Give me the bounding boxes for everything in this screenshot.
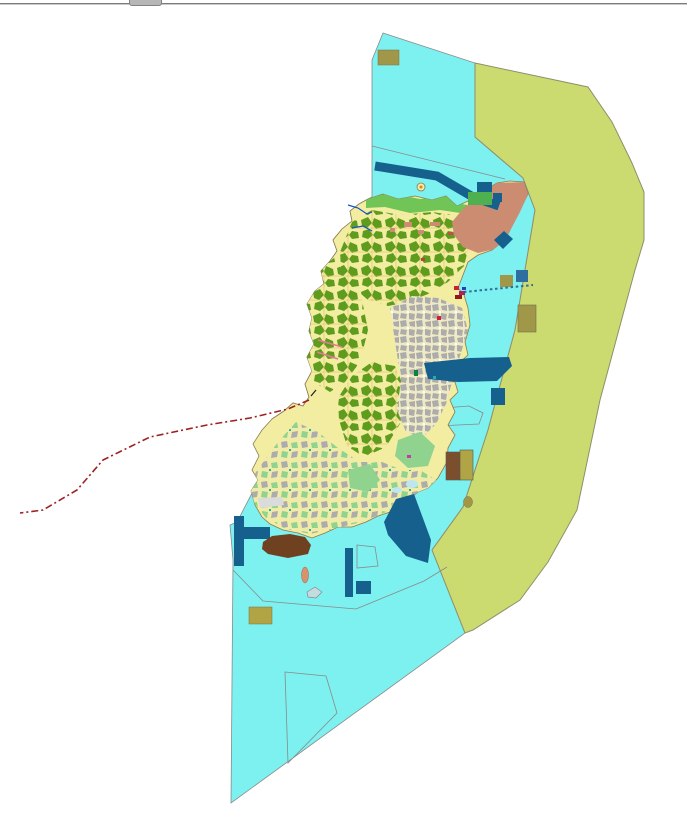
pier-south[interactable] — [345, 548, 353, 597]
speck-red-3 — [448, 232, 453, 235]
slate-site-e[interactable] — [516, 270, 528, 282]
salmon-speck-3 — [430, 222, 440, 226]
harbor-sq-east[interactable] — [491, 388, 505, 405]
khaki-site-top[interactable] — [378, 50, 399, 65]
zoning-map[interactable] — [0, 0, 687, 821]
khaki-site-se[interactable] — [460, 450, 473, 480]
speck-red-2 — [421, 258, 425, 261]
khaki-site-e1[interactable] — [500, 275, 513, 287]
khaki-site-e2[interactable] — [518, 305, 536, 332]
khaki-islet-se — [464, 497, 473, 508]
salmon-speck-1 — [404, 222, 412, 227]
harbor-sq-south[interactable] — [356, 581, 371, 594]
salmon-speck-4 — [390, 228, 395, 232]
pier-west-arm[interactable] — [244, 527, 270, 539]
brown-site-se[interactable] — [446, 452, 460, 480]
ferry-mark-1 — [454, 286, 459, 290]
ferry-mark-4 — [462, 287, 466, 290]
salmon-speck-2 — [418, 230, 424, 234]
speck-teal-1 — [433, 376, 436, 379]
speck-green-1 — [414, 370, 418, 376]
islet-marker-n-dot — [420, 186, 423, 189]
ferry-mark-2 — [459, 291, 465, 295]
speck-red-1 — [437, 316, 441, 320]
lagoon-1 — [406, 480, 418, 488]
speck-magenta-1 — [407, 455, 411, 458]
ferry-mark-3 — [455, 295, 462, 299]
harbor-rect-ne-2[interactable] — [493, 193, 502, 202]
salmon-islet-s — [302, 567, 309, 583]
map-viewport — [0, 0, 687, 821]
green-zone-ne[interactable] — [468, 192, 492, 205]
lagoon-2 — [392, 487, 402, 493]
khaki-site-bottom[interactable] — [249, 607, 272, 624]
harbor-rect-ne-1[interactable] — [477, 182, 492, 192]
pier-west-vertical[interactable] — [234, 516, 244, 566]
